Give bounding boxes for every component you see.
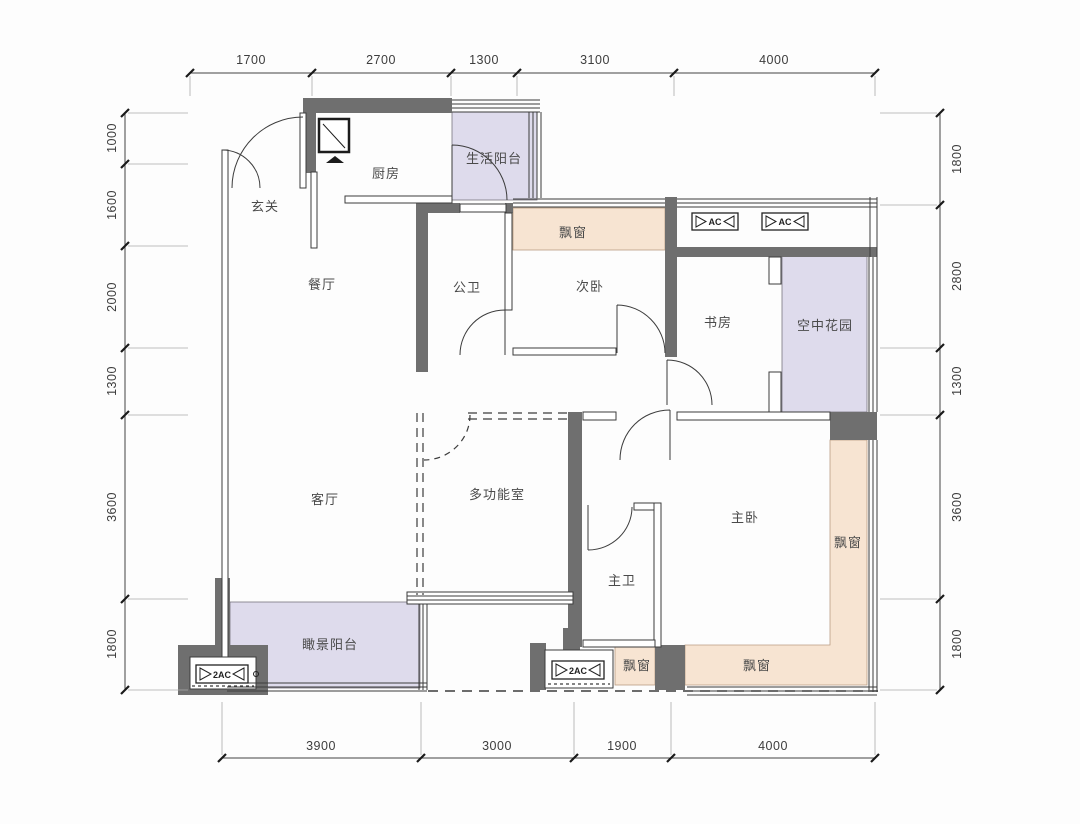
wall — [505, 213, 512, 310]
room-label-view-balcony: 瞰景阳台 — [302, 637, 358, 652]
wall — [583, 412, 616, 420]
ac-unit-1: AC — [692, 213, 738, 230]
wall — [568, 412, 582, 647]
dim-value: 1800 — [950, 144, 964, 174]
dim-value: 1900 — [607, 739, 637, 753]
wall — [460, 204, 506, 212]
ac-label: 2AC — [569, 666, 588, 676]
room-label-multi-room: 多功能室 — [469, 487, 525, 502]
dim-value: 1800 — [950, 629, 964, 659]
room-label-sky-garden: 空中花园 — [797, 318, 853, 333]
bay-window-label: 飘窗 — [834, 535, 862, 550]
dim-value: 1300 — [950, 366, 964, 396]
wall — [303, 98, 452, 113]
ac-unit-2: AC — [762, 213, 808, 230]
dim-value: 3100 — [580, 53, 610, 67]
dim-value: 3600 — [950, 492, 964, 522]
wall — [677, 247, 877, 257]
dim-value: 1700 — [236, 53, 266, 67]
dim-value: 4000 — [759, 53, 789, 67]
wall — [677, 412, 830, 420]
floor-plan-drawing: AC AC 2AC 2AC 玄关 厨房 生活阳台 餐厅 公卫 飘窗 次卧 — [0, 0, 1080, 824]
dim-value: 3900 — [306, 739, 336, 753]
dim-value: 2700 — [366, 53, 396, 67]
room-label-entry: 玄关 — [251, 199, 279, 214]
wall — [769, 257, 781, 284]
wall — [311, 172, 317, 248]
wall — [583, 640, 655, 647]
room-label-living: 客厅 — [311, 492, 339, 507]
wall — [655, 645, 685, 690]
door-leaf — [300, 113, 306, 188]
wall — [769, 372, 781, 412]
room-label-study: 书房 — [704, 315, 732, 330]
dim-value: 4000 — [758, 739, 788, 753]
floor-plan-page: AC AC 2AC 2AC 玄关 厨房 生活阳台 餐厅 公卫 飘窗 次卧 — [0, 0, 1080, 824]
room-label-master-bath: 主卫 — [608, 573, 636, 588]
wall — [416, 203, 428, 357]
wall — [222, 150, 228, 657]
wall — [530, 643, 546, 690]
dim-value: 2000 — [105, 282, 119, 312]
ac-label: AC — [709, 217, 722, 227]
wall — [513, 348, 616, 355]
bay-window-label: 飘窗 — [743, 658, 771, 673]
room-label-second-bedroom: 次卧 — [576, 279, 604, 294]
wall — [563, 628, 580, 650]
wall — [416, 203, 460, 213]
bay-window-label: 飘窗 — [559, 225, 587, 240]
wall — [416, 355, 428, 372]
window-sill — [407, 592, 573, 604]
dim-value: 1800 — [105, 629, 119, 659]
dim-value: 1000 — [105, 123, 119, 153]
wall — [830, 412, 877, 440]
room-label-dining: 餐厅 — [308, 277, 336, 292]
dim-value: 1600 — [105, 190, 119, 220]
room-label-guest-bath: 公卫 — [453, 280, 481, 295]
wall — [654, 503, 661, 647]
bay-window-label: 飘窗 — [623, 658, 651, 673]
wall — [665, 197, 677, 357]
ac-unit-2ac-mid: 2AC — [552, 661, 604, 679]
dim-value: 3000 — [482, 739, 512, 753]
room-label-master-bedroom: 主卧 — [731, 510, 759, 525]
background — [0, 0, 1080, 824]
dim-value: 2800 — [950, 261, 964, 291]
ac-label: 2AC — [213, 670, 232, 680]
wall — [345, 196, 452, 203]
sky-garden-region — [782, 255, 867, 412]
dim-value: 1300 — [105, 366, 119, 396]
room-label-kitchen: 厨房 — [372, 166, 400, 181]
room-label-service-balcony: 生活阳台 — [466, 151, 522, 166]
bay-window-north-region — [513, 208, 665, 250]
dim-value: 3600 — [105, 492, 119, 522]
dim-value: 1300 — [469, 53, 499, 67]
ac-label: AC — [779, 217, 792, 227]
